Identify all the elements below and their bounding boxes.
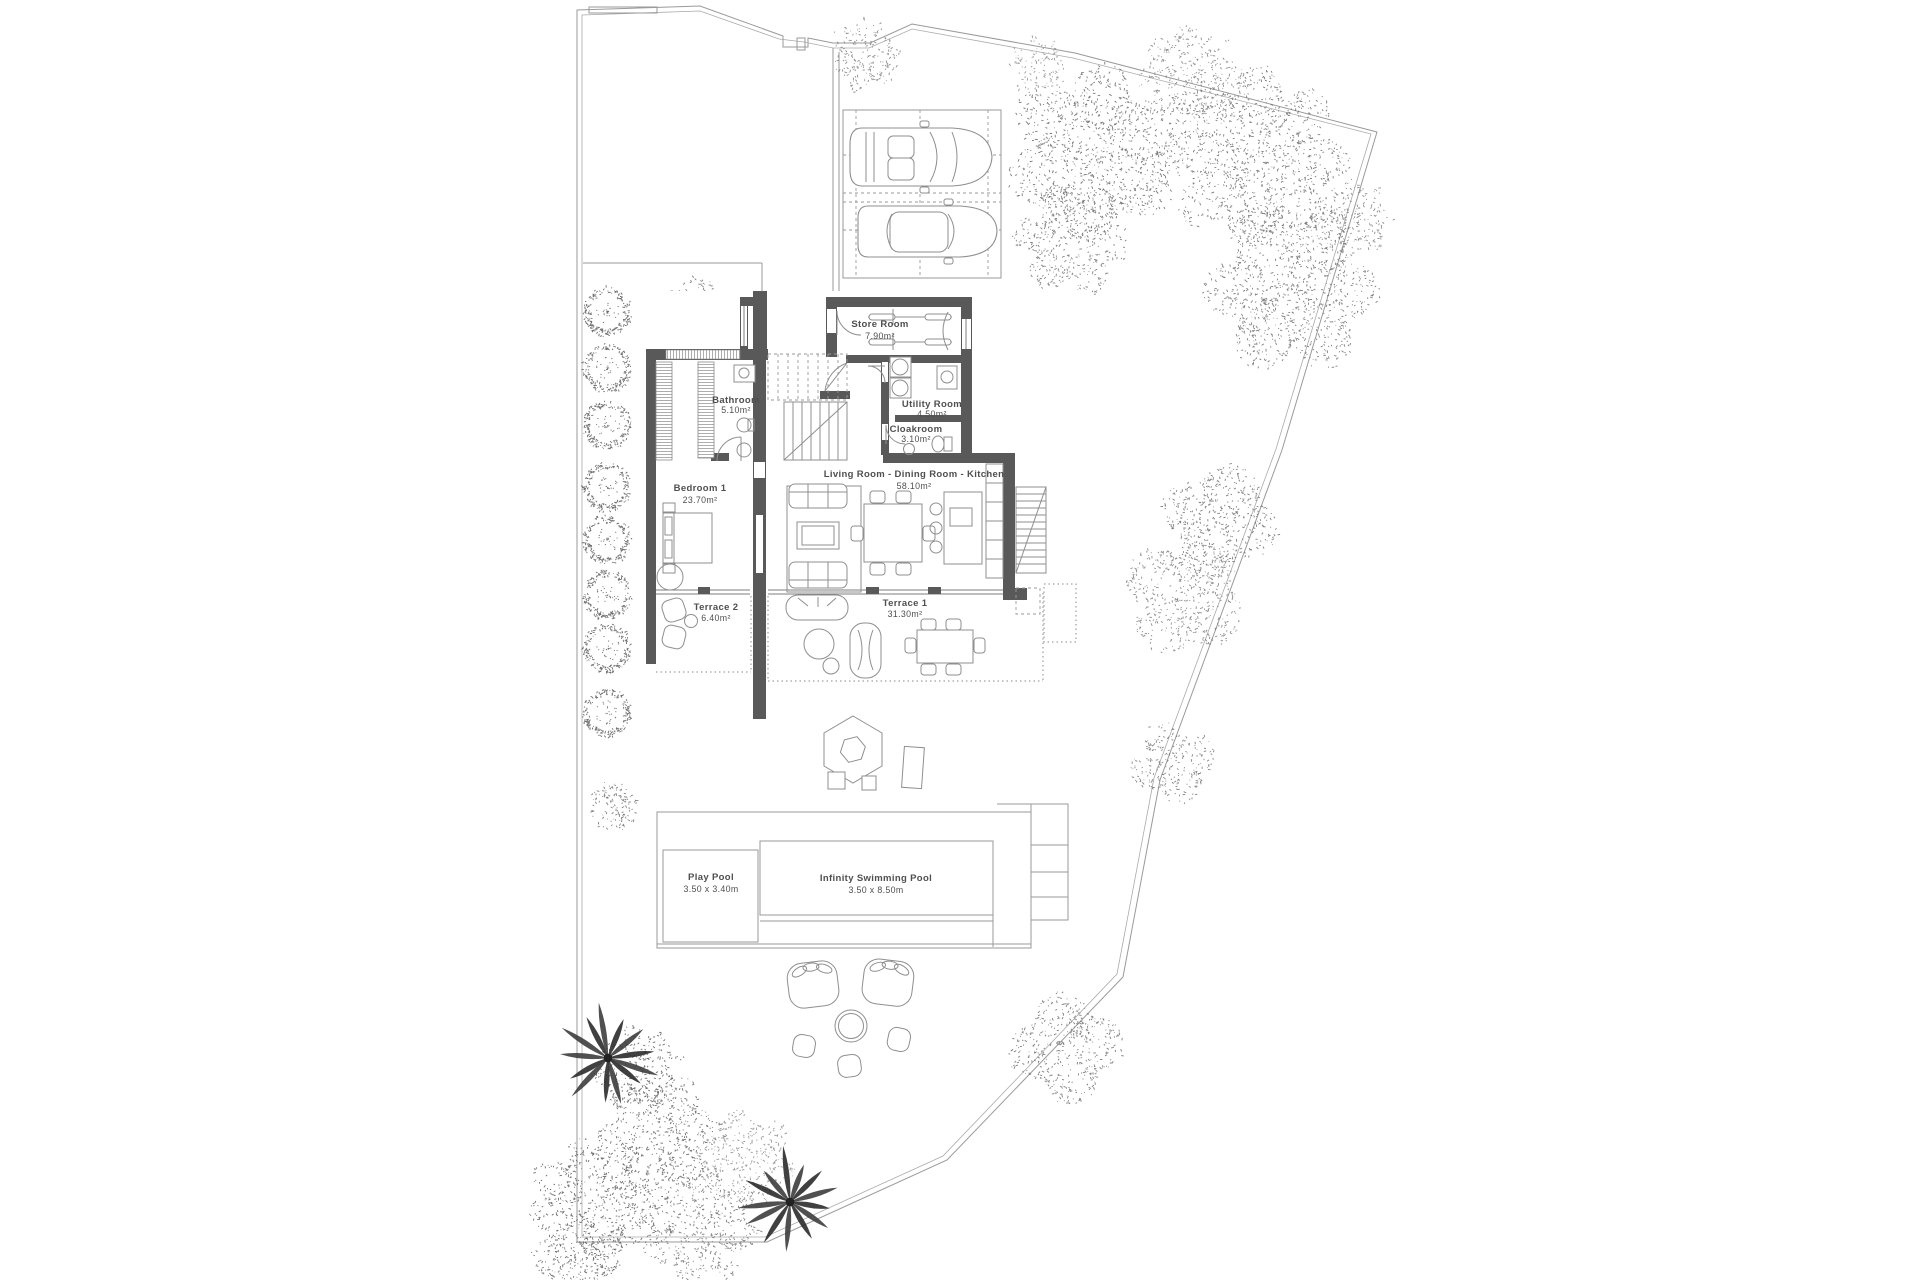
carport	[843, 110, 1001, 278]
garden-armchair	[860, 957, 915, 1008]
west-wall	[646, 349, 656, 664]
tree	[1131, 723, 1214, 804]
car-mirror	[920, 121, 929, 127]
palm-tree	[560, 1003, 658, 1104]
terrace-1-area: 31.30m²	[888, 609, 923, 619]
infinity-pool-label: Infinity Swimming Pool	[820, 873, 932, 884]
car-seat	[888, 136, 914, 158]
pouf	[791, 1033, 816, 1058]
boundary-inner-line	[582, 11, 1371, 1237]
utility-sink	[937, 366, 957, 389]
tree	[1159, 66, 1351, 248]
cloakroom-area: 3.10m²	[901, 434, 930, 444]
bush	[581, 343, 631, 392]
tree	[1009, 62, 1180, 242]
chair	[851, 526, 863, 541]
slider-tick	[698, 587, 710, 594]
outdoor-table	[917, 630, 973, 663]
pouf	[837, 1053, 863, 1078]
driveway-fence	[833, 48, 839, 298]
chair	[921, 619, 936, 630]
living-north-wall	[883, 453, 1015, 463]
slider-tick	[866, 587, 879, 594]
play-pool	[663, 850, 758, 942]
lounge-chair	[850, 623, 881, 678]
car-mirror	[944, 258, 953, 264]
tree	[834, 17, 900, 92]
bush	[584, 401, 632, 449]
nightstand	[663, 503, 675, 512]
lounge-area	[786, 957, 916, 1078]
tree	[531, 1215, 617, 1280]
tree	[1311, 179, 1394, 258]
sun-lounger	[902, 746, 925, 788]
tree	[641, 1167, 763, 1280]
chair	[870, 563, 885, 575]
play-pool-size: 3.50 x 3.40m	[683, 884, 738, 894]
chair	[921, 664, 936, 675]
chair	[870, 491, 885, 503]
bush	[581, 462, 631, 513]
chair	[974, 638, 985, 653]
pouf	[886, 1026, 912, 1053]
garden-armchair	[786, 959, 841, 1010]
sofa	[789, 484, 847, 508]
site-plan: Store Room 7.90m² Bathroom 5.10m² Utilit…	[0, 0, 1920, 1280]
dining-table	[864, 504, 922, 562]
slider-tick	[928, 587, 941, 594]
round-table	[835, 1010, 867, 1042]
bedroom-furniture	[663, 503, 712, 573]
store-room-area: 7.90m²	[865, 331, 894, 341]
tree	[1126, 542, 1241, 653]
tree	[1009, 992, 1124, 1104]
store-north-wall	[826, 297, 972, 307]
terrace-chair	[661, 624, 688, 651]
infinity-edge	[657, 841, 1031, 947]
car-mirror	[920, 187, 929, 193]
terrace-1-label: Terrace 1	[883, 598, 928, 609]
chair	[896, 563, 911, 575]
pillow	[665, 517, 672, 535]
gate-post	[797, 38, 805, 50]
tree	[530, 1139, 664, 1274]
parasol-area	[824, 716, 924, 790]
chair	[946, 619, 961, 630]
chair	[946, 664, 961, 675]
pouf	[804, 629, 834, 659]
garden-fences	[583, 48, 839, 298]
living-room-label: Living Room - Dining Room - Kitchen	[824, 469, 1005, 480]
pool-steps	[1031, 804, 1068, 920]
tree	[1009, 35, 1064, 96]
terrace-2-area: 6.40m²	[701, 613, 730, 623]
infinity-pool-size: 3.50 x 8.50m	[848, 885, 903, 895]
store-room-label: Store Room	[851, 319, 908, 330]
tree	[590, 782, 638, 829]
bush	[582, 515, 632, 564]
tree	[1202, 210, 1380, 370]
wardrobe-band	[666, 350, 740, 359]
car-convertible	[850, 121, 992, 193]
bush	[583, 570, 633, 620]
bush	[582, 689, 632, 738]
bush	[581, 624, 631, 674]
house	[646, 291, 1076, 719]
bedroom-1-label: Bedroom 1	[674, 483, 727, 494]
bush	[583, 285, 631, 337]
sofa	[789, 562, 847, 588]
utility-room-area: 4.50m²	[917, 409, 946, 419]
tree	[1160, 463, 1280, 576]
play-pool-label: Play Pool	[688, 872, 734, 883]
living-room-area: 58.10m²	[897, 481, 932, 491]
daybed	[786, 595, 848, 620]
chair	[905, 638, 916, 653]
kitchen-island	[944, 492, 982, 564]
side-table	[685, 615, 698, 628]
bedroom-1-area: 23.70m²	[683, 495, 718, 505]
terrace-2-label: Terrace 2	[694, 602, 739, 613]
car-mirror	[944, 199, 953, 205]
tree	[1139, 25, 1244, 125]
parasol-base	[862, 776, 876, 790]
pouf	[823, 658, 839, 674]
car-seat	[888, 158, 914, 180]
pillow	[665, 540, 672, 558]
bathroom-area: 5.10m²	[721, 405, 750, 415]
chair	[896, 491, 911, 503]
car-sedan	[858, 199, 997, 264]
parasol-base	[828, 772, 845, 789]
living-east-wall	[1003, 453, 1015, 600]
